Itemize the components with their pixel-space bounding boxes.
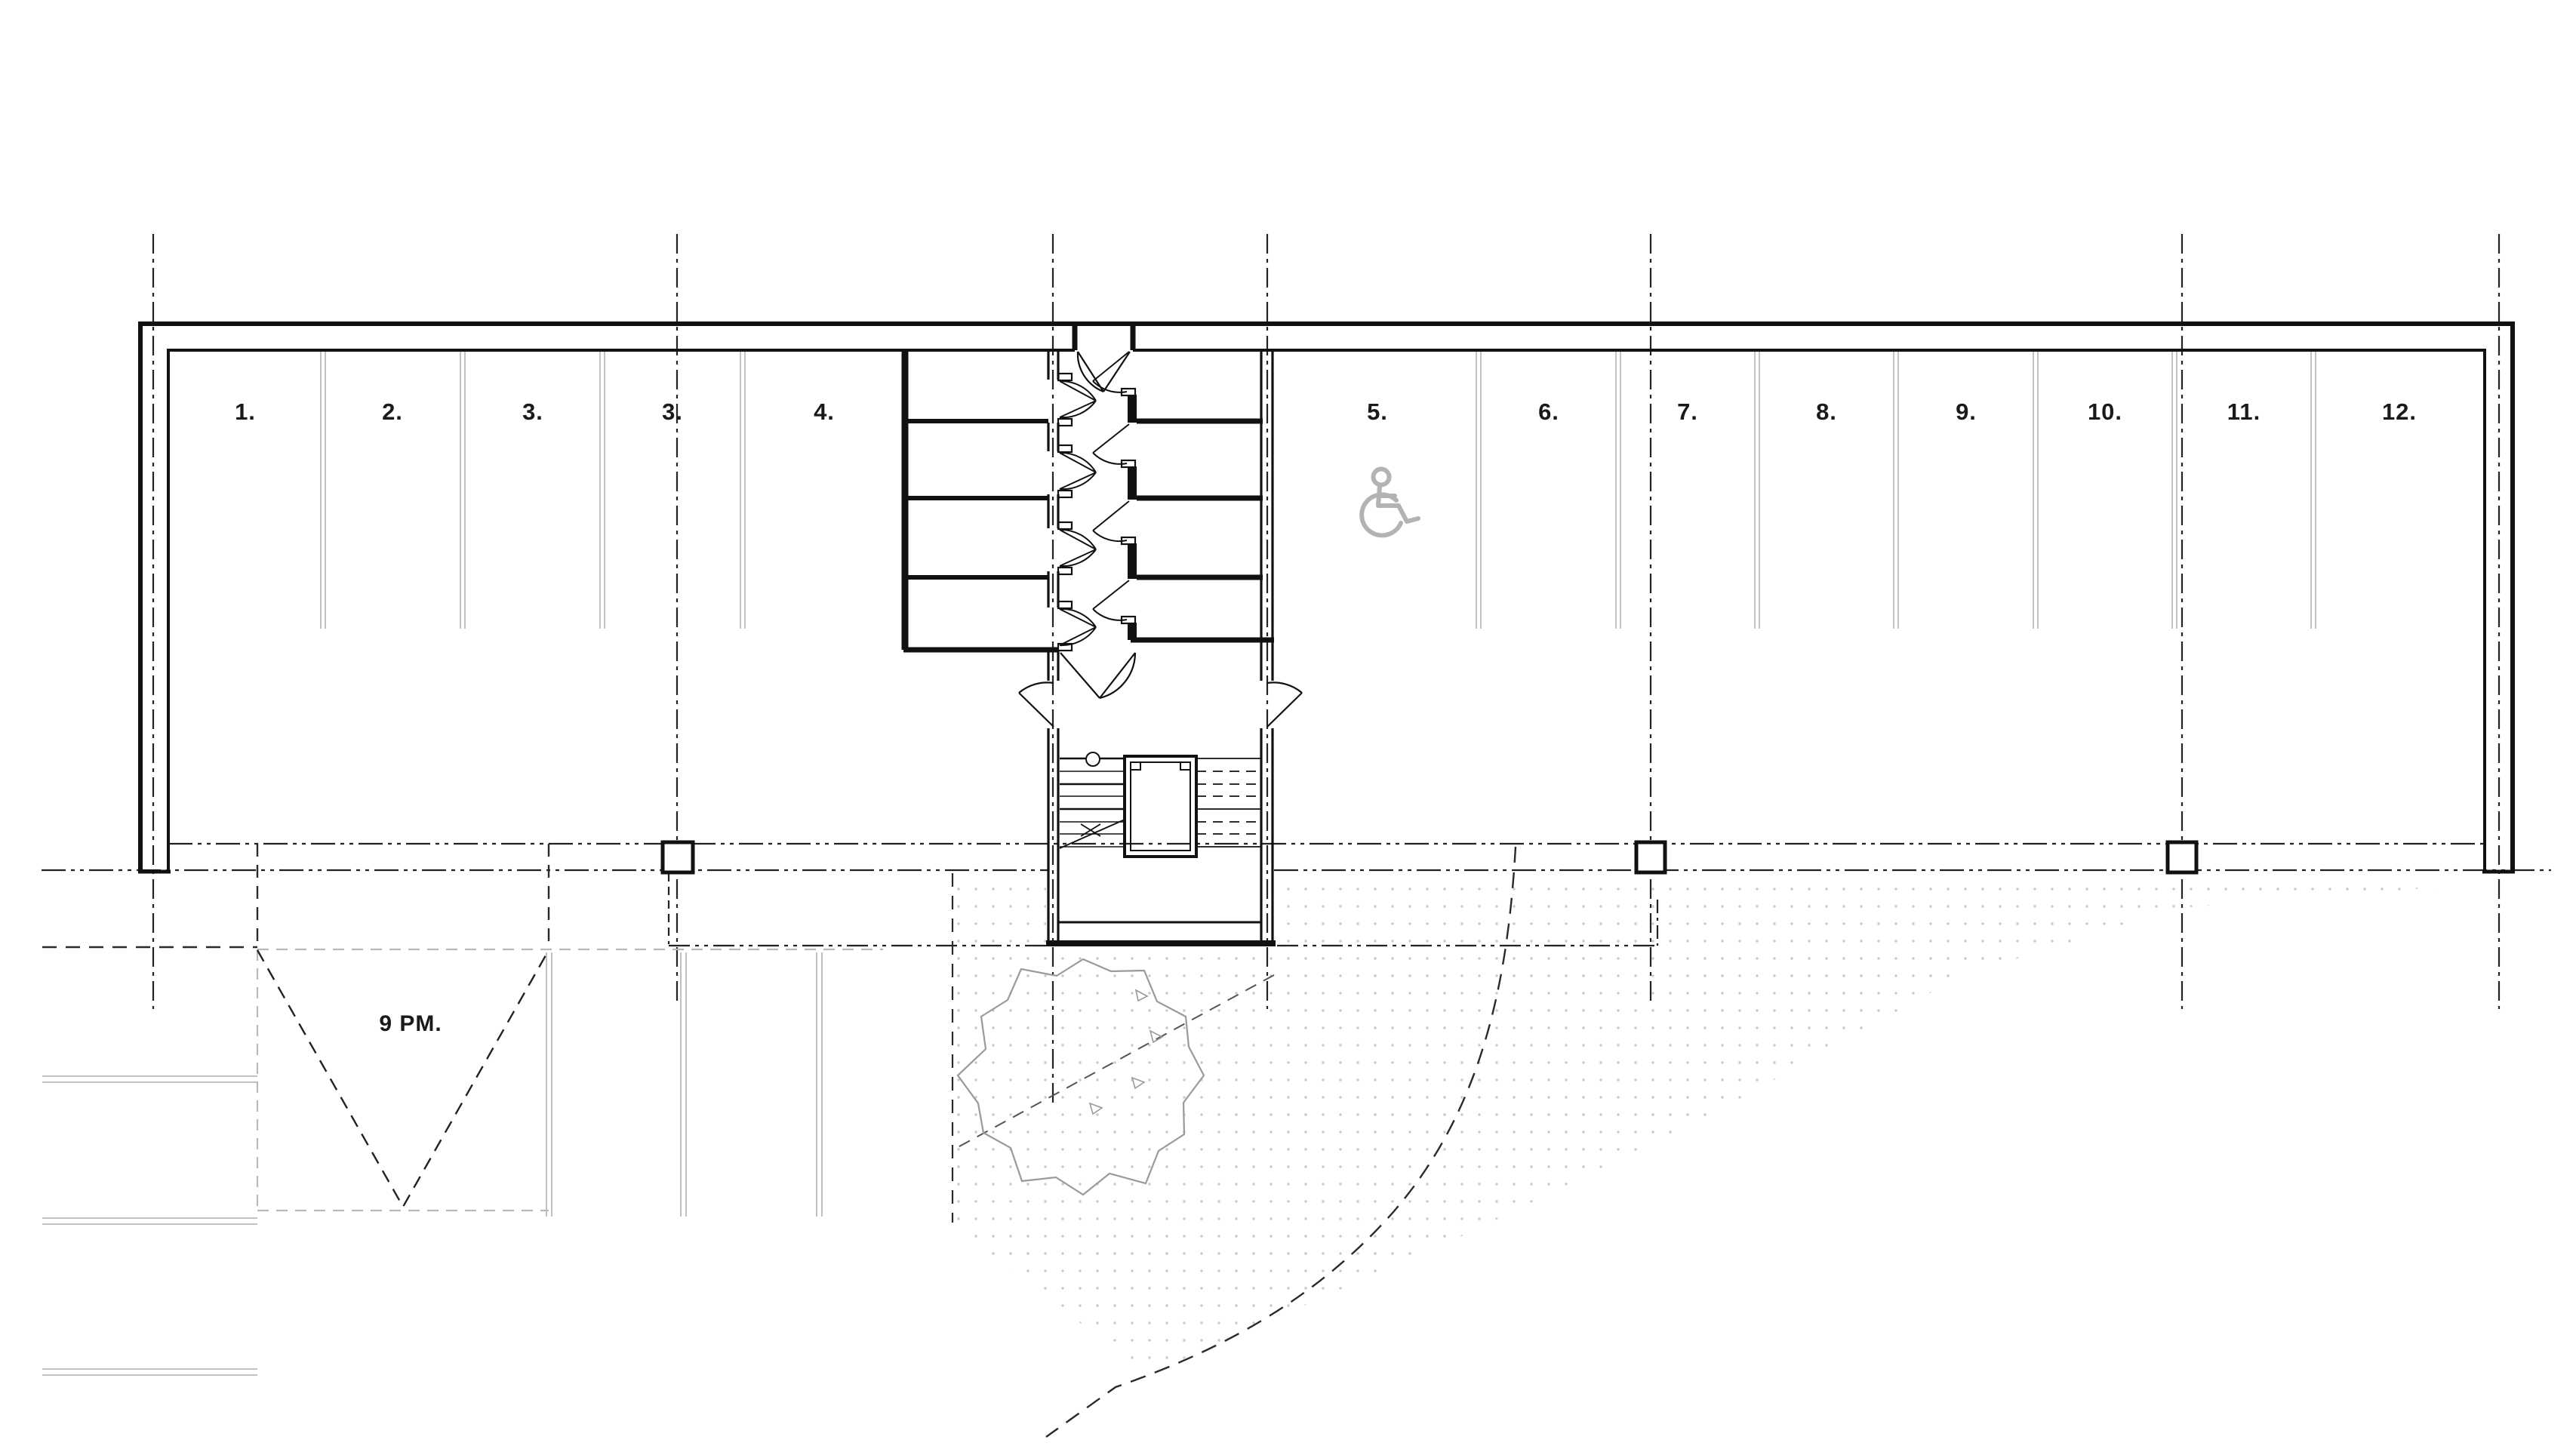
parking-dividers-left bbox=[321, 352, 745, 629]
parking-space-labels: 1. 2. 3. 3. 4. 5. 6. 7. 8. 9. 10. 11. 12… bbox=[235, 398, 2417, 425]
space-label: 7. bbox=[1677, 398, 1698, 425]
column bbox=[1636, 842, 1665, 872]
elevator-shaft bbox=[1125, 756, 1196, 857]
floor-plan-sheet: 9 PM. bbox=[0, 0, 2576, 1449]
space-label: 12. bbox=[2382, 398, 2417, 425]
structural-columns bbox=[663, 842, 2196, 872]
storage-doors-left bbox=[1060, 381, 1096, 645]
column bbox=[663, 842, 693, 872]
wheelchair-icon bbox=[1362, 469, 1418, 536]
walkline-start-circle bbox=[1086, 752, 1100, 766]
corridor-doors bbox=[1019, 352, 1302, 727]
space-label: 10. bbox=[2088, 398, 2122, 425]
floor-plan-canvas: 9 PM. bbox=[0, 0, 2576, 1449]
space-label: 2. bbox=[382, 398, 403, 425]
outdoor-parking-dividers bbox=[546, 952, 822, 1217]
shadow-study-area: 9 PM. bbox=[257, 949, 883, 1211]
space-label: 6. bbox=[1538, 398, 1559, 425]
space-label: 9. bbox=[1956, 398, 1977, 425]
space-label: 1. bbox=[235, 398, 256, 425]
storage-doors-right bbox=[1093, 352, 1129, 620]
space-label: 4. bbox=[814, 398, 835, 425]
parking-dividers-right bbox=[1476, 352, 2316, 629]
storage-rooms-left bbox=[903, 349, 1072, 681]
space-label: 11. bbox=[2227, 398, 2261, 425]
building-shell bbox=[138, 324, 2515, 873]
paving-dot-field bbox=[953, 877, 2453, 1375]
stair-core bbox=[1046, 728, 1276, 943]
column bbox=[2168, 842, 2196, 872]
space-label: 8. bbox=[1816, 398, 1837, 425]
shadow-triangle bbox=[257, 950, 549, 1207]
street-curb-lines bbox=[42, 1076, 257, 1375]
space-label: 3. bbox=[662, 398, 683, 425]
space-label: 5. bbox=[1367, 398, 1388, 425]
shadow-time-label: 9 PM. bbox=[379, 1011, 442, 1036]
stair-flight-upper bbox=[1196, 758, 1260, 847]
space-label: 3. bbox=[522, 398, 543, 425]
storage-rooms-right bbox=[1122, 349, 1274, 681]
